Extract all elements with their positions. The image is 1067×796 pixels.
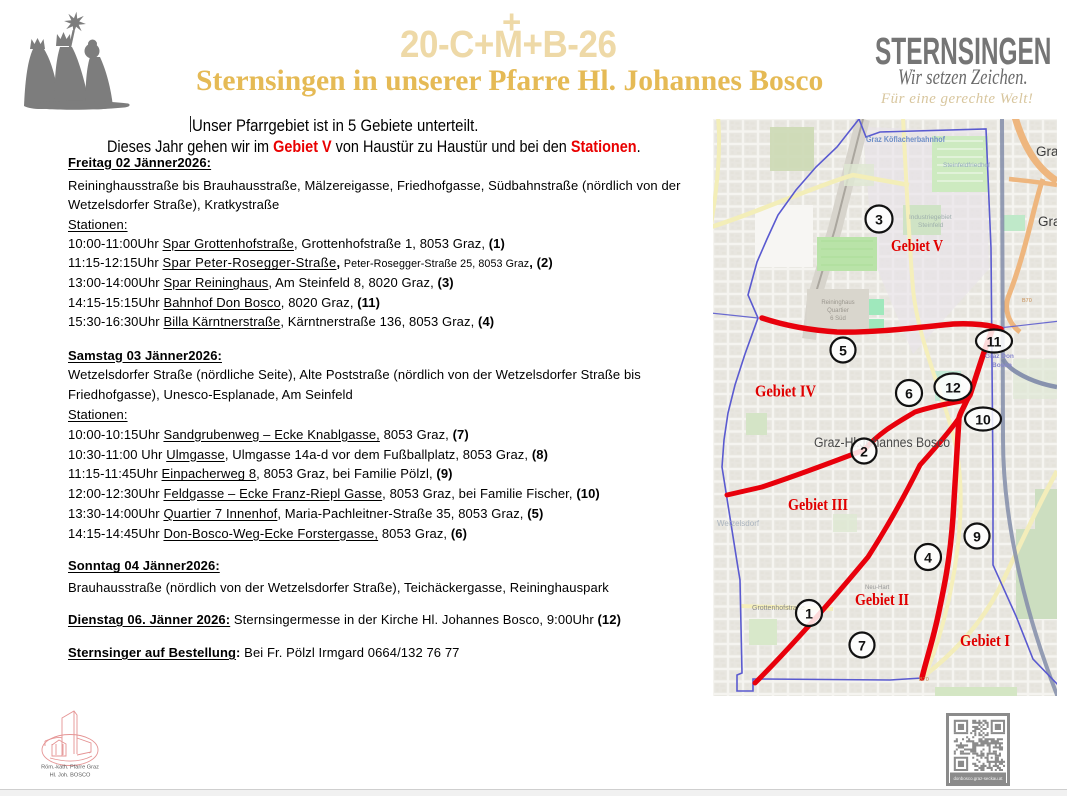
svg-text:Gebiet IV: Gebiet IV xyxy=(755,382,817,401)
svg-text:Hl. Joh. BOSCO: Hl. Joh. BOSCO xyxy=(50,773,91,779)
svg-text:donbosco.graz-seckau.at: donbosco.graz-seckau.at xyxy=(953,776,1003,781)
svg-text:Steinfeldfriedhof: Steinfeldfriedhof xyxy=(943,162,990,169)
svg-text:6: 6 xyxy=(905,386,913,402)
svg-text:10: 10 xyxy=(975,412,991,428)
svg-text:2: 2 xyxy=(860,444,868,460)
svg-text:Wetzelsdorf: Wetzelsdorf xyxy=(717,519,760,528)
svg-text:Gebiet V: Gebiet V xyxy=(891,236,944,255)
svg-text:Industriegebiet: Industriegebiet xyxy=(909,214,952,221)
svg-text:6 Süd: 6 Süd xyxy=(830,316,846,322)
svg-text:B70: B70 xyxy=(1022,298,1032,304)
svg-text:Röm.-kath. Pfarre Graz: Röm.-kath. Pfarre Graz xyxy=(41,765,99,771)
svg-text:Bosco: Bosco xyxy=(992,362,1012,369)
svg-text:7: 7 xyxy=(858,638,866,654)
svg-text:1: 1 xyxy=(805,606,813,622)
svg-text:Gra: Gra xyxy=(1036,144,1057,159)
svg-text:Gebiet III: Gebiet III xyxy=(788,495,848,514)
svg-text:Gra: Gra xyxy=(1038,214,1057,229)
svg-text:12: 12 xyxy=(945,380,961,396)
svg-text:Graz-Hl.Johannes Bosco: Graz-Hl.Johannes Bosco xyxy=(814,435,950,450)
svg-text:Gebiet I: Gebiet I xyxy=(960,631,1010,650)
svg-text:Gebiet II: Gebiet II xyxy=(855,590,909,609)
svg-text:5: 5 xyxy=(839,343,847,359)
svg-text:Quartier: Quartier xyxy=(827,308,849,314)
svg-text:B70: B70 xyxy=(919,677,929,683)
svg-text:3: 3 xyxy=(875,212,883,228)
svg-text:Graz Don: Graz Don xyxy=(985,353,1014,360)
svg-text:Steinfeld: Steinfeld xyxy=(918,222,944,229)
svg-text:9: 9 xyxy=(973,529,981,545)
svg-text:Graz Köflacherbahnhof: Graz Köflacherbahnhof xyxy=(866,134,945,144)
svg-text:11: 11 xyxy=(987,334,1002,350)
svg-text:Reininghaus: Reininghaus xyxy=(821,300,854,306)
svg-text:4: 4 xyxy=(924,550,932,566)
